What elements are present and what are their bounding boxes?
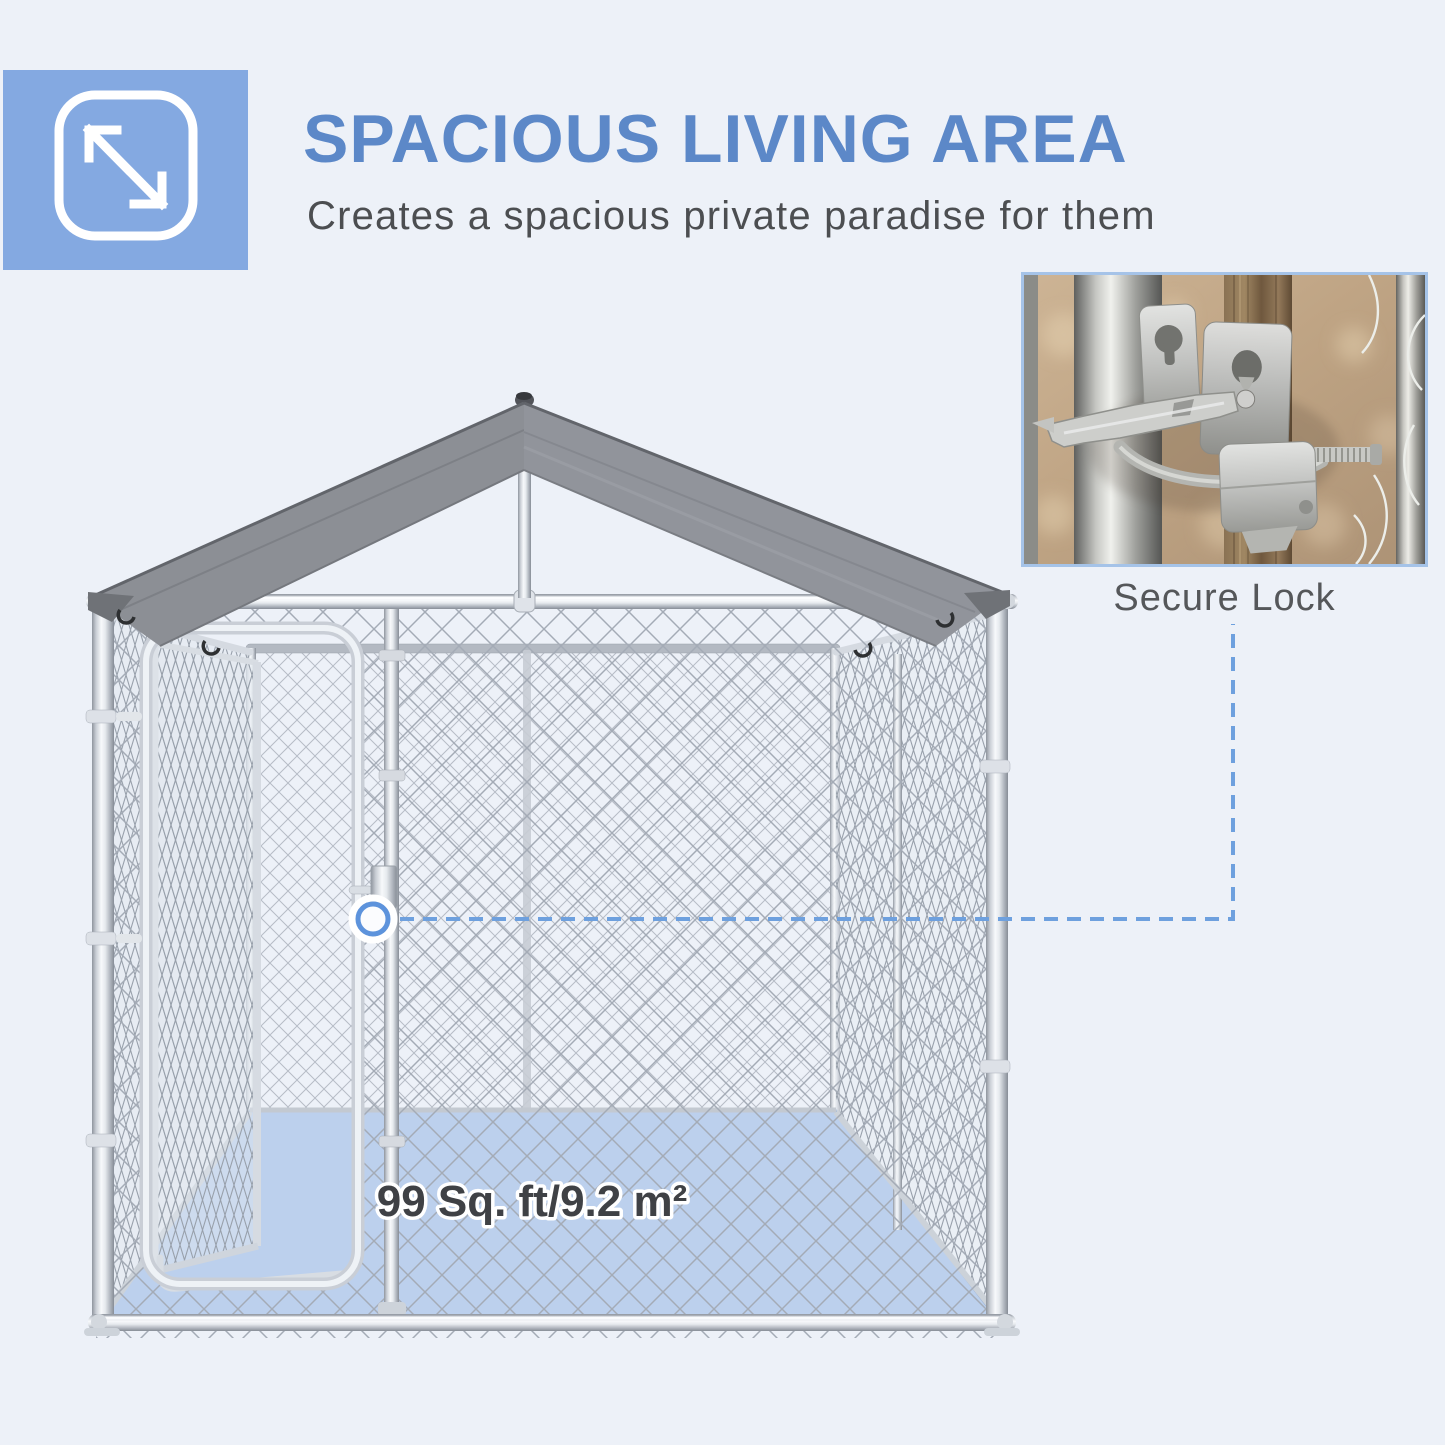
kennel-illustration: 99 Sq. ft/9.2 m² [0,0,1445,1445]
edge-pole [1024,275,1038,564]
latch-arm [349,886,373,894]
marketing-slide: SPACIOUS LIVING AREA Creates a spacious … [0,0,1445,1445]
secure-lock-inset [1021,272,1428,567]
lock-highlight-circle [358,904,388,934]
inset-caption: Secure Lock [1021,577,1428,620]
secure-lock-photo [1024,275,1425,564]
floor-area-label: 99 Sq. ft/9.2 m² [377,1177,688,1226]
